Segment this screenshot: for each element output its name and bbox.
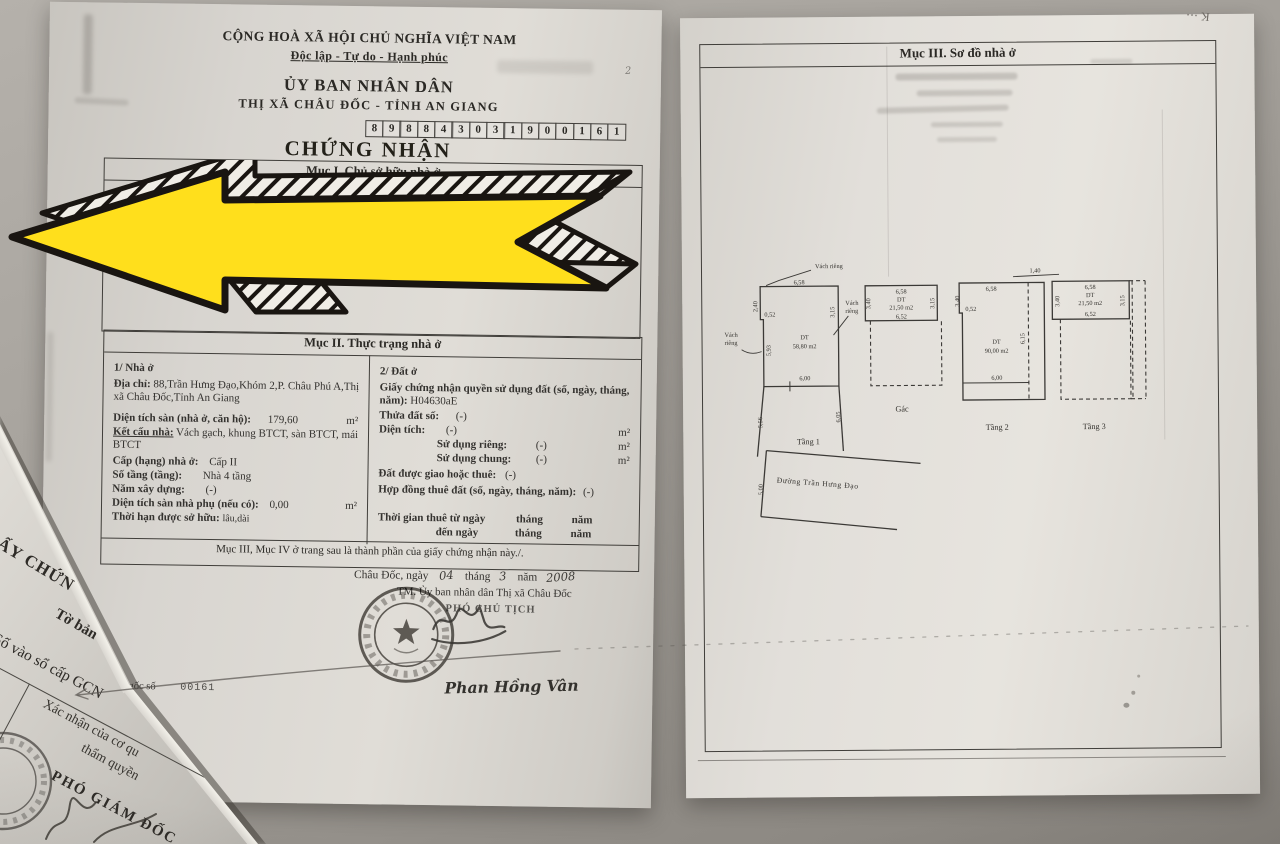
land-shared: Sử dụng chung: (-) m² (379, 451, 632, 468)
tang3-area: 21,50 m2 (1078, 300, 1102, 307)
house-address: Địa chỉ: 88,Trần Hưng Đạo,Khóm 2,P. Châu… (113, 378, 360, 408)
serial-digit: 3 (452, 121, 471, 138)
issuer-line1: ỦY BAN NHÂN DÂN (219, 74, 519, 98)
shared-use-label: Sử dụng chung: (437, 452, 512, 465)
signer-name: Phan Hồng Vân (444, 675, 624, 698)
tang2-dim-right: 6,15 (1019, 333, 1026, 344)
national-motto: Độc lập - Tự do - Hạnh phúc (219, 47, 519, 66)
tang3-dt: DT (1086, 292, 1095, 299)
wall-callout-label: Vách (724, 332, 738, 339)
tang1-dt: DT (800, 334, 809, 341)
tang1-dim-ext-left: 5,56 (757, 417, 764, 428)
land-heading: 2/ Đất ở (380, 365, 633, 382)
tang3-dim-top: 6,58 (1085, 284, 1096, 291)
address-label: Địa chỉ: (114, 378, 151, 391)
tang1-dim-ext-right: 6,05 (835, 411, 842, 422)
aux-area-label: Diện tích sàn nhà phụ (nếu có): (112, 497, 259, 511)
signature-scribble (429, 599, 516, 652)
lease-from-label: Thời gian thuê từ ngày (378, 511, 486, 524)
serial-digit: 0 (538, 123, 557, 140)
wall-callout-label: riêng (725, 340, 739, 347)
house-column: 1/ Nhà ở Địa chỉ: 88,Trần Hưng Đạo,Khóm … (102, 352, 371, 545)
structure-label: Kết cấu nhà: (113, 426, 174, 439)
wall-callout-label: riêng (845, 308, 859, 315)
serial-digit: 1 (607, 124, 626, 141)
tang1-dim-width: 6,00 (799, 375, 810, 382)
month-label: tháng (465, 571, 491, 583)
tang1-dim-right: 3,15 (829, 307, 836, 318)
gac-dim-left: 3,40 (865, 298, 872, 309)
yellow-arrow-annotation (0, 160, 660, 338)
photocopy-smudge (75, 97, 129, 106)
house-heading: 1/ Nhà ở (114, 362, 361, 379)
tang2-label: Tầng 2 (986, 423, 1009, 432)
serial-digit: 1 (573, 123, 592, 140)
serial-digit: 4 (434, 121, 453, 138)
tang3-dim-left: 3,40 (1054, 296, 1061, 307)
tang3-dim-bottom: 6,52 (1085, 311, 1096, 318)
gac-dt: DT (897, 296, 906, 303)
grade-value: Cấp II (209, 456, 237, 468)
alloc-value: (-) (505, 469, 516, 481)
place-date-label: Châu Đốc, ngày (354, 569, 429, 582)
land-area-value: (-) (446, 424, 457, 436)
street-name: Đường Trần Hưng Đạo (777, 476, 860, 491)
tang2-dt: DT (992, 339, 1001, 346)
gac-area: 21,50 m2 (889, 304, 913, 311)
serial-digit: 3 (486, 122, 505, 139)
margin-mark: 2 (625, 66, 632, 77)
private-use-label: Sử dụng riêng: (437, 438, 507, 451)
floors-value: Nhà 4 tầng (203, 470, 251, 483)
photocopy-smudge (46, 332, 54, 462)
lease-year-label: năm (572, 514, 593, 526)
house-tenure: Thời hạn được sở hữu: lâu,dài (112, 511, 359, 528)
page-edge-line (698, 756, 1226, 761)
land-alloc: Đất được giao hoặc thuê: (-) (378, 467, 631, 484)
gac-dim-bottom: 6,52 (896, 313, 907, 320)
land-area-label: Diện tích: (379, 423, 425, 436)
tenure-value: lâu,dài (222, 513, 249, 524)
serial-digit: 1 (503, 122, 522, 139)
photo-of-certificate: CỘNG HOÀ XÃ HỘI CHỦ NGHĨA VIỆT NAM Độc l… (0, 0, 1280, 844)
serial-digit: 0 (469, 122, 488, 139)
contract-label: Hợp đồng thuê đất (số, ngày, tháng, năm)… (378, 483, 576, 498)
floor-area-label: Diện tích sàn (nhà ở, căn hộ): (113, 412, 251, 426)
contract-value: (-) (583, 486, 594, 498)
shared-use-value: (-) (536, 454, 547, 466)
tang2-dim-notch-w: 0,52 (965, 306, 976, 313)
tang2-dim-top: 6,58 (986, 286, 997, 293)
tang3-label: Tầng 3 (1083, 422, 1106, 431)
tang2-dim-notch-h: 3,40 (954, 296, 961, 307)
tang1-dim-notch-h: 2,40 (752, 301, 759, 312)
floor-area-value: 179,60 (268, 414, 298, 426)
serial-digit: 9 (521, 122, 540, 139)
tang1-area: 58,80 m2 (793, 343, 817, 350)
street-dim: 5,00 (758, 484, 765, 495)
tang3-dim-right: 3,15 (1119, 295, 1126, 306)
address-value: 88,Trần Hưng Đạo,Khóm 2,P. Châu Phú A,Th… (113, 378, 359, 404)
stamp-star (393, 619, 420, 645)
certificate-page-right: Mục III. Sơ đồ nhà ở (680, 14, 1260, 798)
private-use-value: (-) (536, 440, 547, 452)
serial-digit: 6 (590, 123, 609, 140)
gac-dim-right: 3,15 (929, 298, 936, 309)
serial-digit: 0 (555, 123, 574, 140)
year-built-label: Năm xây dựng: (112, 483, 185, 496)
shared-use-unit: m² (618, 455, 630, 468)
tang2-area: 90,00 m2 (985, 348, 1009, 355)
gac-label: Gác (895, 404, 909, 413)
tang1-label: Tầng 1 (797, 437, 820, 446)
parcel-label: Thửa đất số: (379, 409, 439, 422)
land-area-unit: m² (618, 427, 630, 440)
aux-area-unit: m² (345, 500, 357, 513)
year-handwritten: 2008 (546, 569, 576, 585)
tang2-dim-over: 1,40 (1029, 267, 1040, 274)
tang1-dim-notch-w: 0,52 (764, 312, 775, 319)
day-handwritten: 04 (439, 568, 455, 583)
alloc-label: Đất được giao hoặc thuê: (378, 467, 496, 481)
lease-month-label: tháng (516, 513, 543, 525)
tang1-dim-left: 5,93 (766, 345, 773, 356)
tenure-label: Thời hạn được sở hữu: (112, 511, 220, 525)
serial-digit: 8 (365, 120, 384, 137)
corner-signature-strokes (36, 784, 176, 844)
wall-callout-label: Vách riêng (815, 263, 844, 270)
photocopy-smudge (83, 14, 93, 94)
grade-label: Cấp (hạng) nhà ở: (113, 455, 199, 468)
lease-to-label: đến ngày (436, 526, 479, 539)
national-title: CỘNG HOÀ XÃ HỘI CHỦ NGHĨA VIỆT NAM (219, 28, 519, 48)
serial-digit: 8 (400, 121, 419, 138)
land-contract: Hợp đồng thuê đất (số, ngày, tháng, năm)… (378, 483, 631, 500)
parcel-value: (-) (456, 410, 467, 422)
section-2-box: Mục II. Thực trạng nhà ở 1/ Nhà ở Địa ch… (100, 330, 642, 573)
year-built-value: (-) (206, 484, 217, 496)
lease-to: đến ngày tháng năm (378, 525, 631, 542)
serial-digit: 9 (382, 120, 401, 137)
month-handwritten: 3 (499, 569, 507, 583)
land-column: 2/ Đất ở Giấy chứng nhận quyền sử dụng đ… (367, 355, 641, 548)
registry-number: 00161 (180, 683, 215, 694)
floor-plan-drawing: Vách riêng Vách riêng Vách riêng 6,58 2,… (719, 251, 1166, 544)
private-use-unit: m² (618, 441, 630, 454)
land-cert: Giấy chứng nhận quyền sử dụng đất (số, n… (379, 381, 632, 411)
aux-area-value: 0,00 (269, 499, 288, 511)
floors-label: Số tầng (tầng): (112, 469, 182, 482)
wall-callout-label: Vách (845, 300, 859, 307)
gac-dim-top: 6,58 (896, 288, 907, 295)
lease-year-label: năm (570, 528, 591, 540)
house-structure: Kết cấu nhà: Vách gạch, khung BTCT, sàn … (113, 426, 360, 456)
tang1-dim-top: 6,58 (794, 279, 805, 286)
serial-digit: 8 (417, 121, 436, 138)
corner-pen-mark: K ⋯ (1185, 7, 1210, 24)
tang2-dim-width: 6,00 (991, 375, 1002, 382)
issuer-line2: THỊ XÃ CHÂU ĐỐC - TỈNH AN GIANG (219, 96, 519, 115)
year-label: năm (517, 571, 537, 583)
lease-month-label: tháng (515, 527, 542, 539)
land-cert-value: H04630aE (410, 395, 457, 408)
section-3-title: Mục III. Sơ đồ nhà ở (700, 41, 1215, 68)
floor-area-unit: m² (346, 415, 358, 428)
